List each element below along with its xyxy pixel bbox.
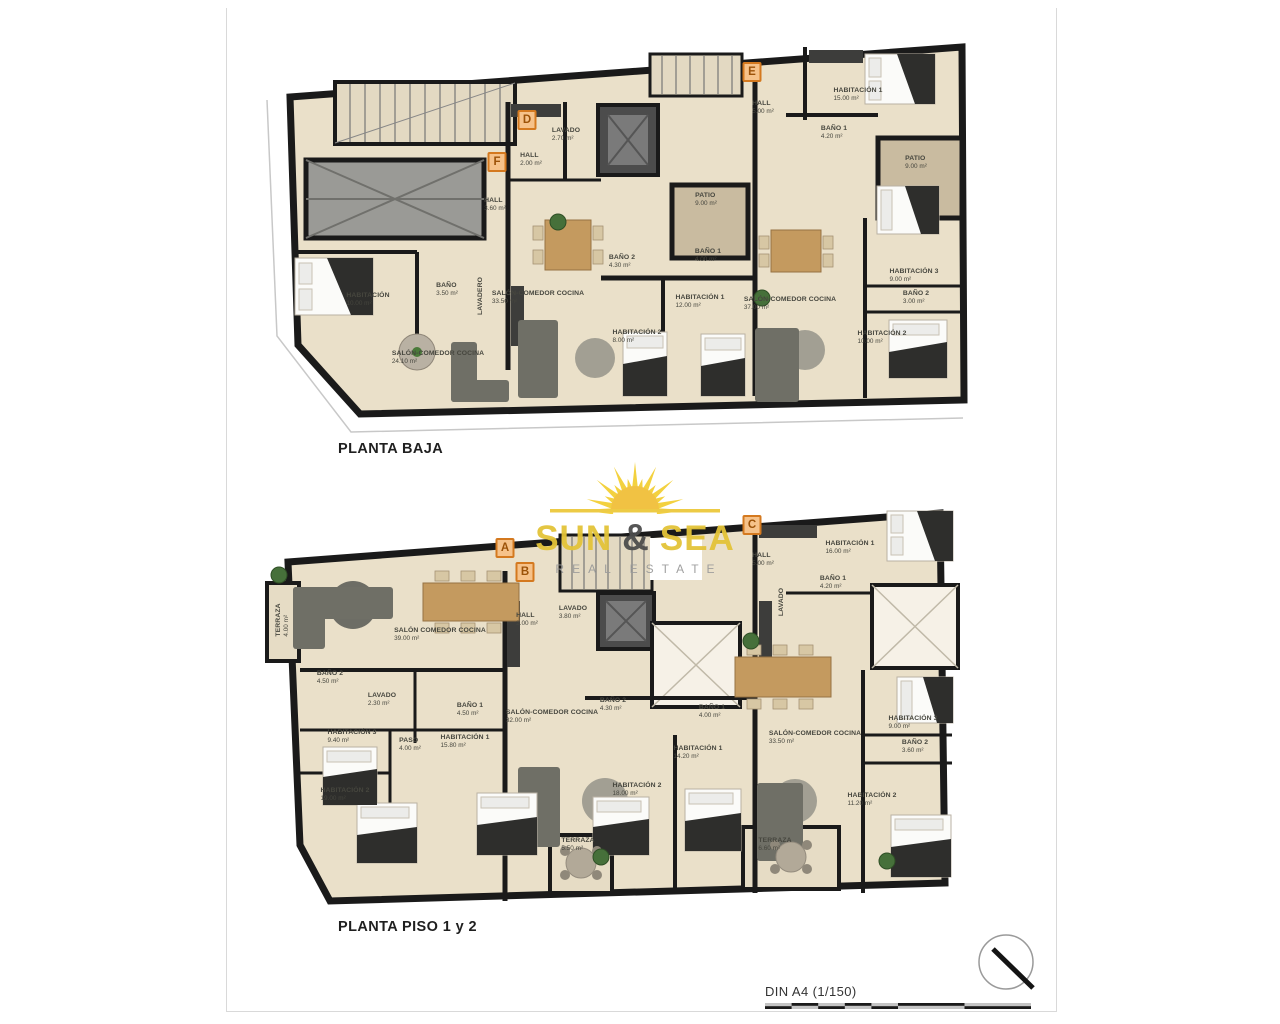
room-area: 4.30 m² — [600, 705, 626, 713]
room-area: 2.00 m² — [520, 160, 542, 168]
room-name: SALÓN-COMEDOR COCINA — [744, 296, 836, 304]
apartment-badge: C — [743, 515, 762, 535]
apartment-letter: C — [748, 519, 756, 531]
room-area: 14.20 m² — [673, 753, 722, 761]
room-area: 4.00 m² — [399, 745, 421, 753]
room-label: BAÑO 2 4.50 m² — [317, 670, 343, 686]
room-area: 3.50 m² — [436, 290, 458, 298]
room-name: HALL — [752, 552, 774, 560]
room-name: PASO — [399, 737, 421, 745]
room-area: 5.00 m² — [752, 560, 774, 568]
room-label: BAÑO 1 4.00 m² — [695, 248, 721, 264]
room-name: HABITACIÓN 1 — [673, 745, 722, 753]
room-area: 24.10 m² — [392, 358, 484, 366]
floorplan-sheet: { "colors":{"wall":"#1a1a1a","floor":"#e… — [0, 0, 1280, 1024]
room-name: BAÑO 1 — [457, 702, 483, 710]
room-name: HABITACIÓN 1 — [833, 87, 882, 95]
room-label: BAÑO 1 4.20 m² — [820, 575, 846, 591]
room-label: TERRAZA 5.50 m² — [561, 837, 594, 853]
room-area: 19.00 m² — [320, 795, 369, 803]
apartment-badge: B — [516, 562, 535, 582]
room-area: 10.00 m² — [346, 300, 389, 308]
room-area: 10.00 m² — [857, 338, 906, 346]
room-area: 9.40 m² — [327, 737, 376, 745]
room-area: 32.00 m² — [506, 717, 598, 725]
room-area: 3.00 m² — [903, 298, 929, 306]
apartment-letter: A — [501, 542, 509, 554]
room-area: 18.00 m² — [612, 790, 661, 798]
room-name: HABITACIÓN 1 — [440, 734, 489, 742]
room-label: LAVADERO — [477, 277, 485, 315]
room-area: 37.00 m² — [744, 304, 836, 312]
room-name: HABITACIÓN 2 — [847, 792, 896, 800]
room-label: HABITACIÓN 1 15.80 m² — [440, 734, 489, 750]
room-label: HABITACIÓN 2 10.00 m² — [857, 330, 906, 346]
room-label: HABITACIÓN 1 14.20 m² — [673, 745, 722, 761]
room-name: LAVADO — [552, 127, 580, 135]
room-label: BAÑO 1 4.50 m² — [457, 702, 483, 718]
room-name: HABITACIÓN — [346, 292, 389, 300]
room-name: HABITACIÓN 2 — [320, 787, 369, 795]
room-area: 4.50 m² — [457, 710, 483, 718]
room-label: LAVADO 2.30 m² — [368, 692, 396, 708]
room-area: 4.00 m² — [695, 256, 721, 264]
room-name: PATIO — [905, 155, 927, 163]
room-area: 2.70 m² — [552, 135, 580, 143]
apartment-letter: F — [493, 156, 500, 168]
room-name: HABITACIÓN 2 — [612, 782, 661, 790]
room-name: SALÓN-COMEDOR COCINA — [492, 290, 584, 298]
logo-word-sea: SEA — [660, 519, 735, 559]
apartment-badge: D — [518, 110, 537, 130]
room-name: HABITACIÓN 2 — [612, 329, 661, 337]
room-name: LAVADO — [559, 605, 587, 613]
room-label: LAVADO 3.80 m² — [559, 605, 587, 621]
room-area: 11.20 m² — [847, 800, 896, 808]
room-label: LAVADO 2.70 m² — [552, 127, 580, 143]
room-label: SALÓN-COMEDOR COCINA 33.50 m² — [769, 730, 861, 746]
room-name: TERRAZA — [275, 603, 283, 636]
room-name: HABITACIÓN 2 — [857, 330, 906, 338]
room-label: PATIO 9.00 m² — [905, 155, 927, 171]
room-label: HABITACIÓN 3 9.40 m² — [327, 729, 376, 745]
room-label: HABITACIÓN 2 19.00 m² — [320, 787, 369, 803]
room-area: 33.50 m² — [769, 738, 861, 746]
apartment-letter: B — [521, 566, 529, 578]
room-label: PATIO 9.00 m² — [695, 192, 717, 208]
room-name: SALÓN-COMEDOR COCINA — [506, 709, 598, 717]
room-label: SALÓN-COMEDOR COCINA 24.10 m² — [392, 350, 484, 366]
room-name: SALÓN COMEDOR COCINA — [394, 627, 486, 635]
room-area: 3.60 m² — [484, 205, 506, 213]
room-label: HABITACIÓN 3 9.00 m² — [889, 268, 938, 284]
room-area: 39.00 m² — [394, 635, 486, 643]
room-name: BAÑO 1 — [821, 125, 847, 133]
room-label: HALL 2.00 m² — [516, 612, 538, 628]
room-label: HALL 3.60 m² — [484, 197, 506, 213]
room-label: HALL 5.00 m² — [752, 100, 774, 116]
scale-bar: DIN A4 (1/150) — [765, 984, 1065, 1024]
logo-subtitle: REAL ESTATE — [540, 562, 730, 576]
apartment-badge: E — [743, 62, 762, 82]
room-name: BAÑO 2 — [600, 697, 626, 705]
plan-title-upper: PLANTA BAJA — [338, 441, 443, 457]
room-label: BAÑO 2 3.60 m² — [902, 739, 928, 755]
room-name: BAÑO — [436, 282, 458, 290]
room-name: PATIO — [695, 192, 717, 200]
room-label: HALL 5.00 m² — [752, 552, 774, 568]
room-name: TERRAZA — [758, 837, 791, 845]
apartment-badge: A — [496, 538, 515, 558]
room-label: HALL 2.00 m² — [520, 152, 542, 168]
room-area: 4.20 m² — [821, 133, 847, 141]
room-area: 3.60 m² — [902, 747, 928, 755]
room-label: BAÑO 2 4.30 m² — [609, 254, 635, 270]
floor-plan-planta-baja: LAVADO 2.70 m² HALL 2.00 m² HALL 3.60 m²… — [265, 40, 970, 440]
room-name: HALL — [484, 197, 506, 205]
room-name: LAVADO — [778, 588, 786, 616]
room-label: TERRAZA 6.60 m² — [758, 837, 791, 853]
room-label: PASO 4.00 m² — [399, 737, 421, 753]
room-name: TERRAZA — [561, 837, 594, 845]
room-name: BAÑO 2 — [903, 290, 929, 298]
room-area: 8.00 m² — [612, 337, 661, 345]
room-area: 5.00 m² — [752, 108, 774, 116]
room-label: SALÓN-COMEDOR COCINA 33.50 m² — [492, 290, 584, 306]
room-area: 33.50 m² — [492, 298, 584, 306]
page-border-right — [1056, 8, 1057, 1012]
room-name: LAVADERO — [477, 277, 485, 315]
sun-and-sea-logo: SUN&SEA REAL ESTATE — [540, 450, 730, 576]
page-border-left — [226, 8, 227, 1012]
room-area: 4.20 m² — [820, 583, 846, 591]
room-area: 9.00 m² — [889, 276, 938, 284]
room-name: BAÑO 2 — [317, 670, 343, 678]
plan-title-lower: PLANTA PISO 1 y 2 — [338, 919, 477, 935]
room-label: TERRAZA 4.00 m² — [275, 603, 291, 636]
scale-ticks — [765, 1019, 1031, 1024]
room-label: HABITACIÓN 10.00 m² — [346, 292, 389, 308]
room-name: HABITACIÓN 1 — [825, 540, 874, 548]
room-label: BAÑO 2 4.30 m² — [600, 697, 626, 713]
room-area: 4.00 m² — [699, 712, 725, 720]
apartment-letter: E — [748, 66, 756, 78]
room-name: HALL — [516, 612, 538, 620]
room-label: LAVADO — [778, 588, 786, 616]
sun-icon — [550, 450, 720, 514]
room-area: 15.00 m² — [833, 95, 882, 103]
room-name: HABITACIÓN 3 — [888, 715, 937, 723]
room-area: 3.80 m² — [559, 613, 587, 621]
room-area: 2.30 m² — [368, 700, 396, 708]
room-label: BAÑO 2 3.00 m² — [903, 290, 929, 306]
room-name: LAVADO — [368, 692, 396, 700]
room-name: HALL — [520, 152, 542, 160]
room-area: 9.00 m² — [888, 723, 937, 731]
room-name: SALÓN-COMEDOR COCINA — [769, 730, 861, 738]
room-name: BAÑO 1 — [699, 704, 725, 712]
room-name: BAÑO 2 — [609, 254, 635, 262]
room-area: 5.50 m² — [561, 845, 594, 853]
room-area: 16.00 m² — [825, 548, 874, 556]
room-label: BAÑO 1 4.20 m² — [821, 125, 847, 141]
logo-word-sun: SUN — [535, 519, 612, 559]
room-name: BAÑO 1 — [820, 575, 846, 583]
logo-ampersand: & — [622, 517, 650, 559]
room-name: HABITACIÓN 3 — [327, 729, 376, 737]
room-area: 9.00 m² — [695, 200, 717, 208]
room-label: SALÓN-COMEDOR COCINA 32.00 m² — [506, 709, 598, 725]
room-label: HABITACIÓN 1 16.00 m² — [825, 540, 874, 556]
scale-bar-graphic — [765, 1002, 1031, 1014]
room-name: SALÓN-COMEDOR COCINA — [392, 350, 484, 358]
room-label: SALÓN COMEDOR COCINA 39.00 m² — [394, 627, 486, 643]
logo-wordmark: SUN&SEA — [540, 517, 730, 559]
room-label: HABITACIÓN 2 8.00 m² — [612, 329, 661, 345]
room-label: BAÑO 3.50 m² — [436, 282, 458, 298]
room-label: HABITACIÓN 3 9.00 m² — [888, 715, 937, 731]
room-label: SALÓN-COMEDOR COCINA 37.00 m² — [744, 296, 836, 312]
room-label: HABITACIÓN 1 12.00 m² — [675, 294, 724, 310]
room-name: BAÑO 2 — [902, 739, 928, 747]
room-area: 4.00 m² — [283, 603, 291, 636]
room-area: 4.50 m² — [317, 678, 343, 686]
room-name: BAÑO 1 — [695, 248, 721, 256]
room-name: HABITACIÓN 1 — [675, 294, 724, 302]
room-area: 15.80 m² — [440, 742, 489, 750]
room-label: HABITACIÓN 1 15.00 m² — [833, 87, 882, 103]
planta-baja-labels: LAVADO 2.70 m² HALL 2.00 m² HALL 3.60 m²… — [265, 40, 970, 440]
room-name: HABITACIÓN 3 — [889, 268, 938, 276]
room-area: 4.30 m² — [609, 262, 635, 270]
scale-label: DIN A4 (1/150) — [765, 984, 1065, 999]
room-area: 6.60 m² — [758, 845, 791, 853]
room-area: 9.00 m² — [905, 163, 927, 171]
room-label: HABITACIÓN 2 11.20 m² — [847, 792, 896, 808]
room-label: HABITACIÓN 2 18.00 m² — [612, 782, 661, 798]
apartment-letter: D — [523, 114, 531, 126]
apartment-badge: F — [488, 152, 507, 172]
room-name: HALL — [752, 100, 774, 108]
room-label: BAÑO 1 4.00 m² — [699, 704, 725, 720]
room-area: 12.00 m² — [675, 302, 724, 310]
room-area: 2.00 m² — [516, 620, 538, 628]
